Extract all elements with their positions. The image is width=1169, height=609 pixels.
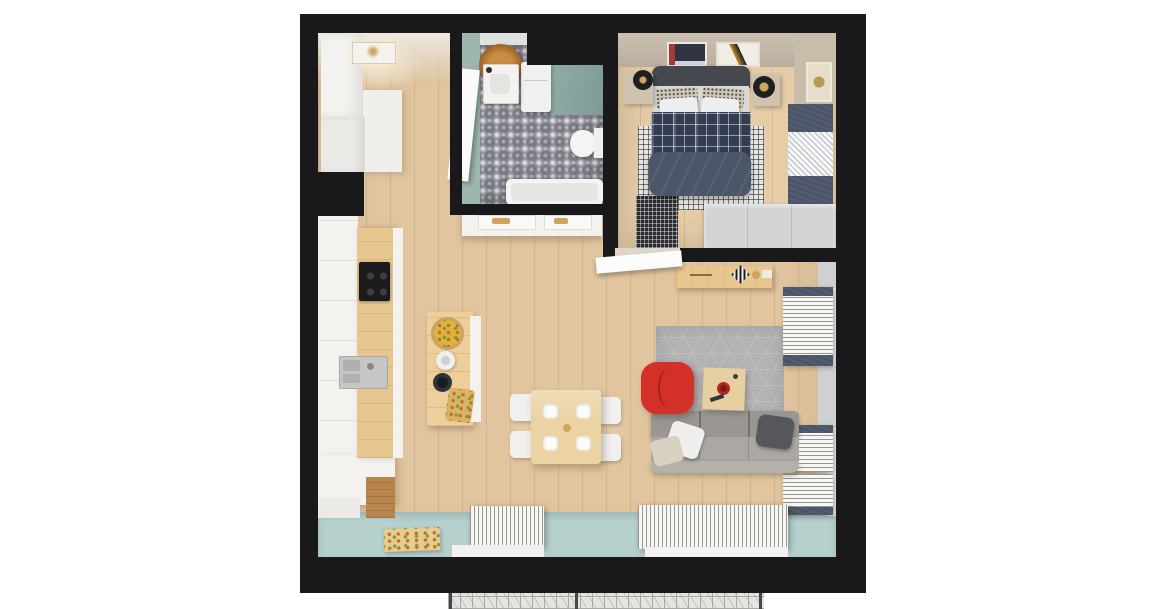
living-curtain-top-edge2 <box>783 355 833 366</box>
bedroom-wardrobe <box>704 204 836 248</box>
entry-cabinet-c <box>362 90 402 172</box>
plate-2 <box>576 404 591 419</box>
shower-panel <box>551 65 603 115</box>
entry-wardrobe-b <box>321 117 365 173</box>
console-pen <box>690 274 712 276</box>
wall-right <box>836 33 866 585</box>
cutting-board <box>445 387 475 423</box>
wall-art-2 <box>716 42 760 67</box>
wall-entry-notch <box>300 172 364 216</box>
bathroom-wall-topband <box>480 33 527 45</box>
console-decor <box>762 270 772 278</box>
kitchen-wood-panel <box>366 477 395 518</box>
bedroom-curtain-sheer <box>788 132 833 178</box>
washbasin-bowl <box>490 74 510 94</box>
washing-machine-lid <box>524 80 548 81</box>
sideboard-tray-right <box>544 215 592 230</box>
tray-decor-gold-2 <box>554 218 568 224</box>
living-curtain-top-edge <box>783 287 833 296</box>
bedside-lamp-left <box>633 70 653 90</box>
table-centerpiece <box>563 424 571 432</box>
ceiling-lamp-ornament <box>366 45 380 58</box>
tray-decor-gold <box>492 218 510 224</box>
sink-basin-left <box>343 360 360 371</box>
kettle <box>436 351 455 370</box>
console-gold-dot <box>752 271 760 279</box>
bunched-curtain-left <box>470 506 544 548</box>
kitchen-counter-edge <box>393 228 403 458</box>
toilet-tank <box>594 128 603 158</box>
bed-headboard <box>652 66 750 88</box>
bed-duvet <box>649 152 751 196</box>
bedside-lamp-right <box>753 76 775 98</box>
plate-1 <box>543 404 558 419</box>
cooktop-burners <box>362 266 387 297</box>
coffee-table-item <box>733 374 738 379</box>
bunched-curtain-right <box>638 505 788 549</box>
sink-basin-right <box>343 374 360 383</box>
wooden-tray <box>384 527 441 552</box>
washbasin-faucet <box>486 67 492 73</box>
wall-bedroom-bottom <box>680 248 836 262</box>
wall-bathroom-bottom <box>450 204 618 215</box>
wall-bottom <box>300 557 866 593</box>
living-curtain-low-edge <box>783 507 833 515</box>
kitchen-lower-cabinet-2 <box>318 498 360 518</box>
bedroom-curtain-top <box>788 104 833 134</box>
washing-machine <box>521 62 551 112</box>
sink-faucet <box>367 363 374 370</box>
plate-4 <box>576 436 591 451</box>
coffee-table-red-dish <box>717 382 730 395</box>
wall-art-1 <box>667 42 707 67</box>
wall-top <box>300 14 866 33</box>
wall-bathroom-left <box>450 33 462 215</box>
bathtub-inner <box>511 183 598 201</box>
floorplan-canvas <box>0 0 1169 609</box>
kitchen-cabinet-run <box>318 216 358 460</box>
bedroom-floor-grille <box>636 196 678 248</box>
toilet-bowl <box>570 130 595 157</box>
sofa-pillow-dark <box>755 414 795 451</box>
wall-art-side <box>806 62 832 102</box>
red-armchair-crease <box>658 368 680 408</box>
plate-3 <box>543 436 558 451</box>
wall-left <box>300 33 318 560</box>
wall-bathroom-bedroom <box>603 33 618 262</box>
fruit-bowl <box>431 317 464 350</box>
